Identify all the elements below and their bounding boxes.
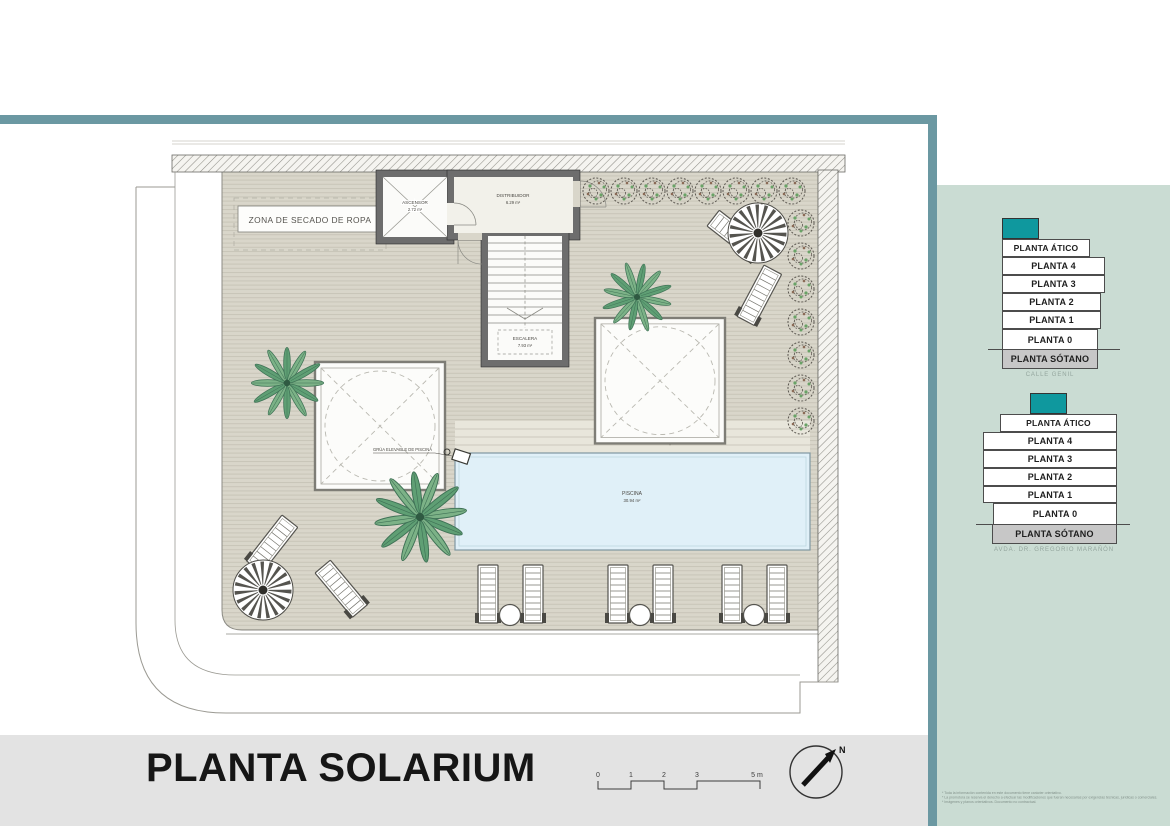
hall-label: DISTRIBUIDOR bbox=[497, 193, 531, 198]
page-title: PLANTA SOLARIUM bbox=[146, 746, 536, 791]
street-label-calle-genil: CALLE GENIL bbox=[990, 372, 1110, 378]
pool-label: PISCINA bbox=[622, 491, 643, 497]
level-row-atico[interactable]: PLANTA ÁTICO bbox=[1000, 414, 1117, 432]
level-row-1[interactable]: PLANTA 1 bbox=[983, 486, 1117, 503]
skylight-left bbox=[315, 362, 445, 490]
scale-bar: 0 1 2 3 5 m bbox=[596, 772, 763, 789]
scale-tick-0: 0 bbox=[596, 772, 600, 779]
disclaimer-line: * Imágenes y planos orientativos. Docume… bbox=[942, 800, 1162, 805]
level-row-2[interactable]: PLANTA 2 bbox=[983, 468, 1117, 486]
sheet-top-lines bbox=[172, 141, 845, 144]
current-level-block[interactable] bbox=[1002, 218, 1039, 239]
pool-area: 30.94 m² bbox=[624, 498, 642, 503]
scale-tick-5m: 5 m bbox=[751, 772, 763, 779]
level-row-3[interactable]: PLANTA 3 bbox=[983, 450, 1117, 468]
floor-plan-drawing: ZONA DE SECADO DE ROPA PISCINA 30.94 m² … bbox=[130, 125, 935, 735]
sheet: ZONA DE SECADO DE ROPA PISCINA 30.94 m² … bbox=[0, 0, 1170, 826]
scale-tick-2: 2 bbox=[662, 772, 666, 779]
elevator-label: ASCENSOR bbox=[402, 200, 428, 205]
street-label-avda-maranon: AVDA. DR. GREGORIO MARAÑÓN bbox=[954, 547, 1154, 553]
level-row-4[interactable]: PLANTA 4 bbox=[1002, 257, 1105, 275]
frame-top-bar bbox=[0, 115, 937, 124]
level-row-1[interactable]: PLANTA 1 bbox=[1002, 311, 1101, 329]
level-row-atico[interactable]: PLANTA ÁTICO bbox=[1002, 239, 1090, 257]
level-row-sotano[interactable]: PLANTA SÓTANO bbox=[992, 524, 1117, 544]
level-row-0[interactable]: PLANTA 0 bbox=[993, 503, 1117, 525]
scale-tick-1: 1 bbox=[629, 772, 633, 779]
elevator-area: 2.72 m² bbox=[408, 207, 423, 212]
stairs-label: ESCALERA bbox=[513, 336, 538, 341]
stairs-area: 7.93 m² bbox=[518, 343, 533, 348]
scale-tick-3: 3 bbox=[695, 772, 699, 779]
parapet-right bbox=[818, 170, 838, 682]
north-label: N bbox=[839, 745, 846, 755]
level-row-2[interactable]: PLANTA 2 bbox=[1002, 293, 1101, 311]
drying-zone-label: ZONA DE SECADO DE ROPA bbox=[249, 215, 372, 225]
level-row-0[interactable]: PLANTA 0 bbox=[1002, 329, 1098, 350]
level-row-4[interactable]: PLANTA 4 bbox=[983, 432, 1117, 450]
footer-graphics: 0 1 2 3 5 m N bbox=[560, 740, 880, 820]
disclaimer: * Toda la información contenida en este … bbox=[942, 791, 1162, 805]
pool: PISCINA 30.94 m² bbox=[455, 453, 810, 550]
current-level-block[interactable] bbox=[1030, 393, 1067, 414]
hall-area: 6.29 m² bbox=[506, 200, 521, 205]
pool-crane-label: GRÚA ELEVABLE DE PISCINA bbox=[373, 447, 432, 452]
parapet-top bbox=[172, 155, 845, 172]
level-row-3[interactable]: PLANTA 3 bbox=[1002, 275, 1105, 293]
level-row-sotano[interactable]: PLANTA SÓTANO bbox=[1002, 349, 1098, 369]
north-arrow: N bbox=[790, 745, 846, 798]
skylight-right bbox=[595, 318, 725, 443]
